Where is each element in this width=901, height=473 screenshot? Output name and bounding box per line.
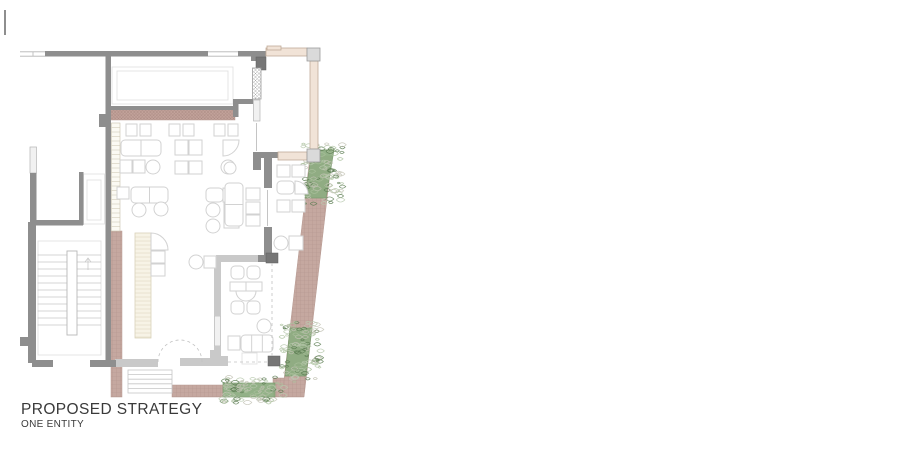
drawing-title-block: PROPOSED STRATEGY ONE ENTITY	[21, 402, 202, 431]
staircase	[38, 251, 102, 335]
terrace-frame	[266, 46, 320, 162]
entry-steps	[128, 370, 172, 393]
crosshatch-wall	[253, 68, 262, 99]
wall-bench-strip	[112, 123, 121, 231]
floor-plan: PROPOSED STRATEGY ONE ENTITY	[0, 0, 901, 468]
floor-plan-svg	[0, 0, 901, 468]
page-subtitle: ONE ENTITY	[21, 419, 202, 431]
bar-counter	[135, 233, 151, 338]
page-title: PROPOSED STRATEGY	[21, 402, 202, 418]
